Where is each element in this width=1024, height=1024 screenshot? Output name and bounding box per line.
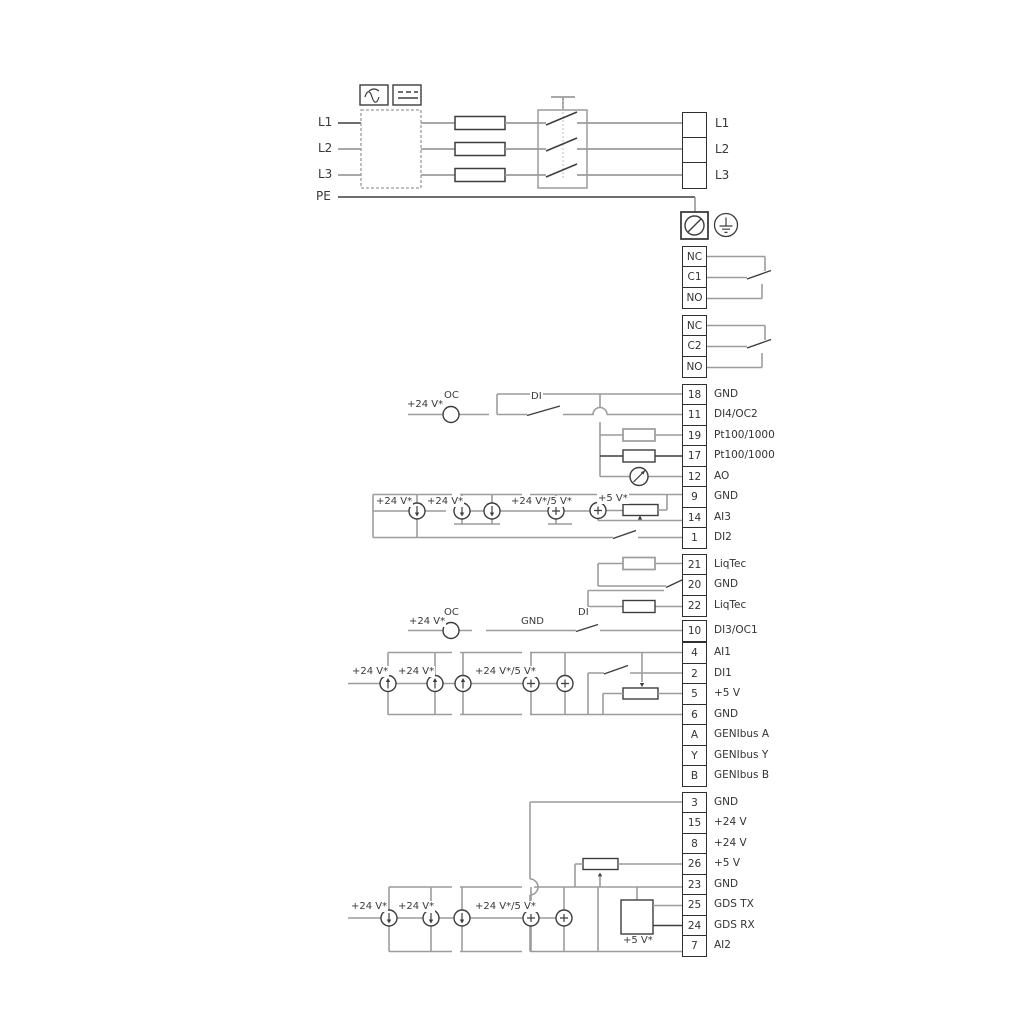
terminal-text: C1	[687, 271, 701, 283]
terminal-label-ai3: AI3	[714, 511, 731, 523]
mains-section	[338, 85, 738, 239]
di1-switch-icon	[604, 666, 628, 675]
filter-box	[361, 110, 421, 188]
relay1-contact	[707, 257, 771, 299]
terminal-cell-4: 4	[682, 642, 707, 664]
terminal-cell-1: 1	[682, 527, 707, 549]
terminal-number: 23	[688, 879, 701, 891]
terminal-cell-24: 24	[682, 915, 707, 937]
terminal-number: 7	[691, 940, 698, 952]
mains-right-l1: L1	[715, 117, 729, 130]
terminal-label-24v15: +24 V	[714, 816, 747, 828]
liqtec-sensor-icon	[623, 558, 655, 570]
terminal-cell-22: 22	[682, 595, 707, 617]
terminal-number: 10	[688, 625, 701, 637]
pe-label: PE	[316, 190, 331, 203]
terminal-cell-7: 7	[682, 935, 707, 957]
dc-icon	[393, 85, 421, 105]
earth-icon	[715, 214, 738, 237]
terminal-label-genibus-y: GENIbus Y	[714, 749, 768, 761]
wire-label-gnd-wire: GND	[520, 616, 545, 627]
mains-terminal-cell	[682, 137, 707, 164]
terminal-cell-3: 3	[682, 792, 707, 814]
terminal-label-gnd9: GND	[714, 490, 738, 502]
terminal-label-ai1: AI1	[714, 646, 731, 658]
liqtec-wiring	[588, 558, 683, 613]
wire-label-ai2-v1: +24 V*	[350, 901, 388, 912]
mains-left-l1: L1	[318, 116, 332, 129]
mains-right-l3: L3	[715, 169, 729, 182]
terminal-cell-nc2: NC	[682, 315, 707, 337]
terminal-text: NC	[687, 320, 702, 332]
terminal-cell-8: 8	[682, 833, 707, 855]
mains-terminal-cell	[682, 112, 707, 139]
terminal-number: 5	[691, 688, 698, 700]
terminal-number: 17	[688, 450, 701, 462]
wire-label-ai3-v4: +5 V*	[597, 493, 629, 504]
terminal-number: 2	[691, 668, 698, 680]
terminal-number: Y	[691, 750, 697, 762]
gds-sensor-icon	[621, 887, 682, 934]
terminal-number: 12	[688, 471, 701, 483]
wire-label-oc2: OC	[443, 390, 460, 401]
terminal-label-24v8: +24 V	[714, 837, 747, 849]
open-collector-icon	[443, 407, 459, 423]
terminal-number: 20	[688, 579, 701, 591]
pe-screw-terminal-icon	[681, 212, 708, 239]
mains-left-l2: L2	[318, 142, 332, 155]
terminal-cell-6: 6	[682, 704, 707, 726]
relay2-contact	[707, 326, 771, 368]
terminal-label-gnd6: GND	[714, 708, 738, 720]
terminal-cell-2: 2	[682, 663, 707, 685]
terminal-cell-no2: NO	[682, 356, 707, 378]
terminal-label-gnd: GND	[714, 388, 738, 400]
terminal-number: 26	[688, 858, 701, 870]
terminal-cell-11: 11	[682, 404, 707, 426]
terminal-label-genibus-b: GENIbus B	[714, 769, 769, 781]
wire-label-24v-oc2: +24 V*	[406, 399, 444, 410]
terminal-cell-c2: C2	[682, 335, 707, 357]
terminal-text: NO	[686, 292, 702, 304]
terminal-number: 8	[691, 838, 698, 850]
terminal-number: 19	[688, 430, 701, 442]
terminal-label-pt100b: Pt100/1000	[714, 449, 775, 461]
terminal-cell-20: 20	[682, 574, 707, 596]
terminal-cell-26: 26	[682, 853, 707, 875]
io1-wiring	[408, 394, 682, 486]
terminal-label-di2: DI2	[714, 531, 732, 543]
wire-label-gds-5v: +5 V*	[622, 935, 654, 946]
wire-label-ai1-v1: +24 V*	[351, 666, 389, 677]
terminal-cell-17: 17	[682, 445, 707, 467]
terminal-number: 9	[691, 491, 698, 503]
wire-label-di3: DI	[577, 607, 590, 618]
terminal-label-di3: DI3/OC1	[714, 624, 758, 636]
potentiometer-icon	[623, 495, 667, 521]
pt100-sensor-icon	[623, 429, 655, 441]
terminal-label-gds-tx: GDS TX	[714, 898, 754, 910]
terminal-cell-19: 19	[682, 425, 707, 447]
fuse-icons	[455, 117, 505, 182]
terminal-cell-23: 23	[682, 874, 707, 896]
terminal-label-genibus-a: GENIbus A	[714, 728, 769, 740]
terminal-cell-nc1: NC	[682, 246, 707, 268]
terminal-cell-c1: C1	[682, 266, 707, 288]
wire-label-ai3-v3: +24 V*/5 V*	[510, 496, 573, 507]
terminal-label-gnd20: GND	[714, 578, 738, 590]
ac-icon	[360, 85, 388, 105]
terminal-label-5v: +5 V	[714, 687, 740, 699]
wire-label-di4: DI	[530, 391, 543, 402]
terminal-label-di1: DI1	[714, 667, 732, 679]
terminal-label-pt100a: Pt100/1000	[714, 429, 775, 441]
di3-wiring	[408, 623, 682, 639]
di2-switch-icon	[613, 531, 636, 539]
terminal-cell-9: 9	[682, 486, 707, 508]
terminal-label-gds-rx: GDS RX	[714, 919, 755, 931]
wire-label-ai2-v2: +24 V*	[397, 901, 435, 912]
terminal-number: 3	[691, 797, 698, 809]
terminal-number: 18	[688, 389, 701, 401]
mains-right-l2: L2	[715, 143, 729, 156]
terminal-number: 6	[691, 709, 698, 721]
wiring-svg	[0, 0, 1024, 1024]
mains-terminal-cell	[682, 162, 707, 189]
terminal-number: 4	[691, 647, 698, 659]
terminal-number: 21	[688, 559, 701, 571]
liqtec-switch-icon	[666, 580, 683, 588]
wiring-diagram: L1 L2 L3 PE L1 L2 L3 NC C1 NO NC C2 NO 1…	[0, 0, 1024, 1024]
terminal-cell-y: Y	[682, 745, 707, 767]
analog-meter-icon	[630, 468, 648, 486]
terminal-label-ai2: AI2	[714, 939, 731, 951]
potentiometer-icon	[603, 653, 682, 715]
terminal-cell-21: 21	[682, 554, 707, 576]
ai1-wiring	[348, 653, 682, 715]
terminal-number: 11	[688, 409, 701, 421]
wire-label-ai3-v1: +24 V*	[375, 496, 413, 507]
terminal-number: 25	[688, 899, 701, 911]
terminal-number: 1	[691, 532, 698, 544]
terminal-label-gnd23: GND	[714, 878, 738, 890]
terminal-cell-b: B	[682, 765, 707, 787]
terminal-cell-no1: NO	[682, 287, 707, 309]
terminal-text: NC	[687, 251, 702, 263]
terminal-cell-a: A	[682, 724, 707, 746]
mains-left-l3: L3	[318, 168, 332, 181]
pt100-sensor-icon	[623, 450, 655, 462]
terminal-cell-18: 18	[682, 384, 707, 406]
potentiometer-icon	[575, 859, 682, 888]
liqtec-sensor-icon	[623, 601, 655, 613]
terminal-cell-10: 10	[682, 620, 707, 642]
terminal-number: A	[691, 729, 698, 741]
terminal-cell-12: 12	[682, 466, 707, 488]
wire-label-ai1-v2: +24 V*	[397, 666, 435, 677]
terminal-number: 15	[688, 817, 701, 829]
terminal-label-gnd3: GND	[714, 796, 738, 808]
wire-label-ai1-v3: +24 V*/5 V*	[474, 666, 537, 677]
terminal-number: 22	[688, 600, 701, 612]
terminal-cell-15: 15	[682, 812, 707, 834]
terminal-text: NO	[686, 361, 702, 373]
terminal-cell-14: 14	[682, 507, 707, 529]
terminal-number: B	[691, 770, 698, 782]
wire-label-24v-oc1: +24 V*	[408, 616, 446, 627]
di4-switch-icon	[527, 406, 560, 416]
current-source-down-icon	[381, 910, 470, 926]
terminal-cell-5: 5	[682, 683, 707, 705]
terminal-number: 14	[688, 512, 701, 524]
terminal-number: 24	[688, 920, 701, 932]
wire-label-oc1: OC	[443, 607, 460, 618]
terminal-label-liqtec1: LiqTec	[714, 558, 746, 570]
wire-label-ai3-v2: +24 V*	[426, 496, 464, 507]
terminal-text: C2	[687, 340, 701, 352]
terminal-label-ao: AO	[714, 470, 729, 482]
terminal-cell-25: 25	[682, 894, 707, 916]
terminal-label-di4: DI4/OC2	[714, 408, 758, 420]
ai2-gds-wiring	[348, 802, 682, 952]
terminal-label-liqtec2: LiqTec	[714, 599, 746, 611]
terminal-label-5v26: +5 V	[714, 857, 740, 869]
di3-switch-icon	[576, 625, 598, 632]
wire-label-ai2-v3: +24 V*/5 V*	[474, 901, 537, 912]
